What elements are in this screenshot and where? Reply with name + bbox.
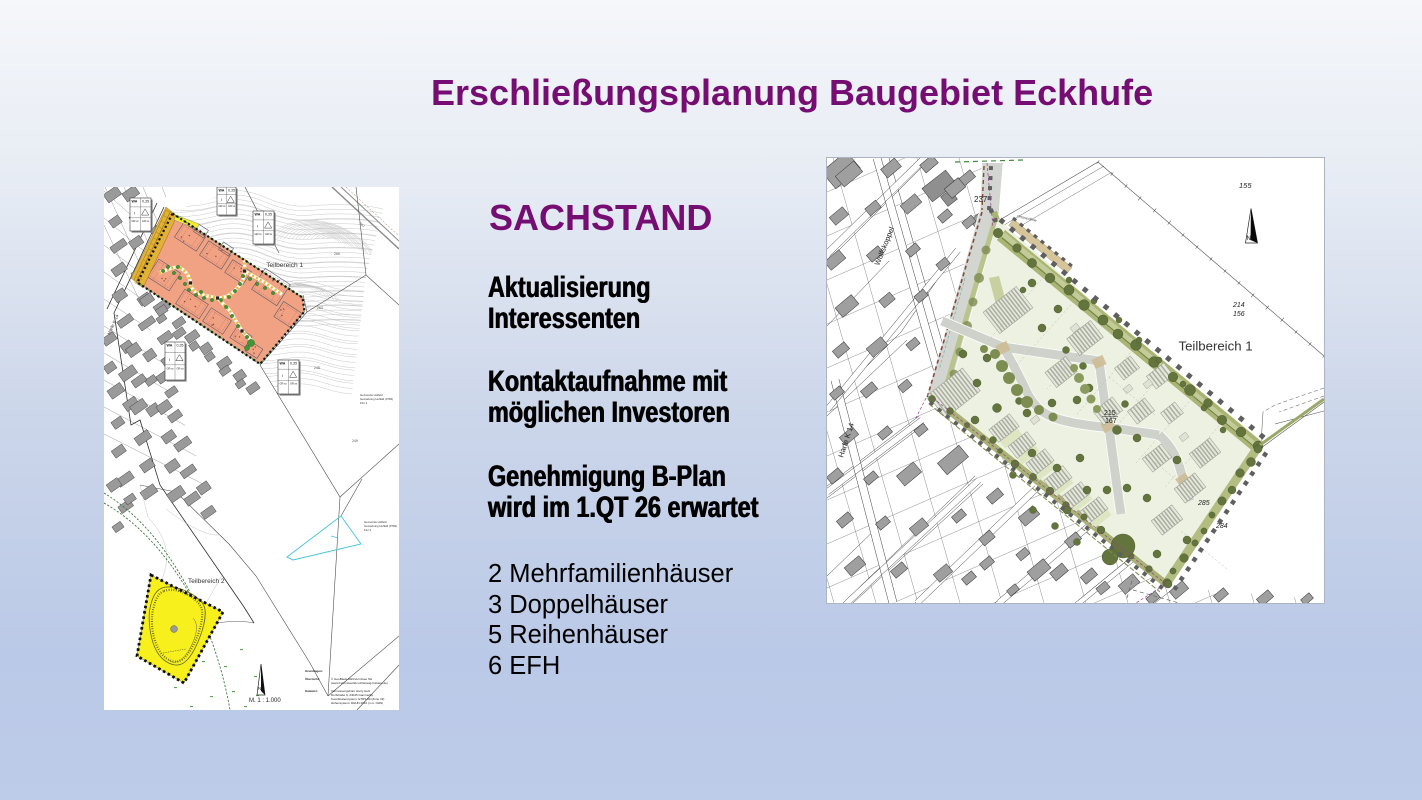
svg-text:263: 263 xyxy=(317,306,323,310)
svg-text:GR:xx: GR:xx xyxy=(255,232,263,236)
svg-text:Teilbereich 1: Teilbereich 1 xyxy=(1179,339,1253,354)
svg-text:0,35: 0,35 xyxy=(228,189,235,193)
svg-text:I: I xyxy=(169,357,170,362)
svg-text:I: I xyxy=(257,224,258,229)
svg-text:249: 249 xyxy=(352,439,358,443)
svg-text:0,35: 0,35 xyxy=(265,213,272,217)
svg-text:Teilbereich 1: Teilbereich 1 xyxy=(266,262,303,269)
svg-text:M. 1 : 1.000: M. 1 : 1.000 xyxy=(249,698,281,704)
svg-text:156: 156 xyxy=(1233,311,1245,318)
svg-text:I: I xyxy=(221,197,222,202)
svg-text:WA: WA xyxy=(280,362,286,366)
svg-text:I: I xyxy=(282,373,283,378)
svg-text:215: 215 xyxy=(1104,410,1116,417)
svg-text:I: I xyxy=(134,211,135,216)
svg-text:GR:xx: GR:xx xyxy=(167,366,175,370)
svg-text:167: 167 xyxy=(1105,418,1117,425)
svg-text:(www.LVermGeoSH.schleswig-hols: (www.LVermGeoSH.schleswig-holstein.de) xyxy=(331,681,388,685)
svg-text:GR:xx: GR:xx xyxy=(290,381,298,385)
svg-text:Höhensystem: DHHN 2016 (m ü. N: Höhensystem: DHHN 2016 (m ü. NHN) xyxy=(331,701,383,705)
svg-text:Flur 2: Flur 2 xyxy=(364,528,372,532)
svg-text:214: 214 xyxy=(1232,302,1245,309)
svg-text:155: 155 xyxy=(1239,181,1252,190)
svg-text:Kataster:: Kataster: xyxy=(305,689,318,693)
svg-text:WA: WA xyxy=(219,189,225,193)
svg-text:Teilbereich 2: Teilbereich 2 xyxy=(188,578,225,585)
svg-text:237: 237 xyxy=(974,195,988,204)
svg-text:GR:xx: GR:xx xyxy=(265,232,273,236)
svg-text:Übersicht:: Übersicht: xyxy=(305,676,320,681)
svg-text:GR:xx: GR:xx xyxy=(219,204,227,208)
svg-text:0,35: 0,35 xyxy=(177,344,184,348)
svg-text:GR:xx: GR:xx xyxy=(228,204,236,208)
svg-text:248: 248 xyxy=(314,366,320,370)
svg-text:0,35: 0,35 xyxy=(290,362,297,366)
svg-text:Grundlagen:: Grundlagen: xyxy=(305,669,323,673)
svg-text:GR:xx: GR:xx xyxy=(132,219,140,223)
svg-text:GR:xx: GR:xx xyxy=(177,366,185,370)
svg-text:GR:xx: GR:xx xyxy=(280,381,288,385)
svg-text:Flur 2: Flur 2 xyxy=(360,401,368,405)
svg-text:284: 284 xyxy=(1215,523,1228,530)
svg-text:N: N xyxy=(258,686,261,691)
svg-text:285: 285 xyxy=(1197,500,1210,507)
svg-text:WA: WA xyxy=(167,344,173,348)
svg-text:265: 265 xyxy=(334,252,340,256)
svg-text:0,35: 0,35 xyxy=(142,200,149,204)
svg-text:WA: WA xyxy=(255,213,261,217)
svg-text:WA: WA xyxy=(132,200,138,204)
svg-text:N: N xyxy=(1247,236,1251,242)
svg-text:GR:xx: GR:xx xyxy=(142,219,150,223)
